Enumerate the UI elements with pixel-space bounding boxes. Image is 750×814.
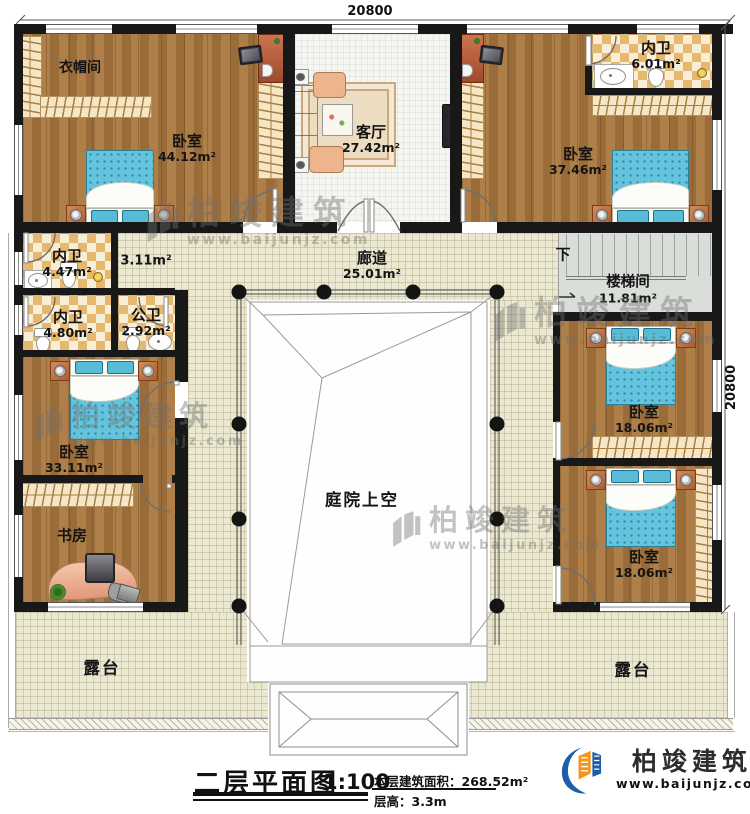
room-label-courtyard: 庭院上空	[325, 492, 399, 511]
wall-segment	[175, 357, 188, 382]
porch-roof-area	[268, 682, 469, 757]
wall-segment	[143, 602, 188, 612]
window	[14, 252, 23, 285]
corridor-floor-left	[188, 300, 247, 612]
wall-segment	[14, 288, 175, 295]
tv-icon	[238, 45, 263, 66]
room-label-living: 客厅 27.42m²	[342, 124, 400, 156]
wall-segment	[712, 412, 722, 485]
wall-segment	[172, 475, 188, 483]
wall-segment	[277, 222, 337, 233]
pillow	[643, 470, 671, 483]
window	[14, 515, 23, 577]
wall-segment	[175, 290, 188, 357]
wall-segment	[14, 24, 23, 125]
wall-segment	[14, 335, 23, 395]
room-label-bedroom-r1: 卧室 18.06m²	[615, 404, 673, 436]
window	[14, 305, 23, 335]
title-underline-thick	[193, 792, 368, 796]
window	[14, 395, 23, 460]
wall-segment	[553, 602, 600, 612]
room-label-terrace-left: 露台	[84, 660, 121, 679]
window	[600, 602, 690, 612]
wall-segment	[112, 24, 176, 34]
sink-icon	[600, 68, 626, 85]
wall-segment	[14, 475, 143, 483]
bed-sheet	[606, 343, 676, 369]
bed-headboard	[606, 326, 676, 343]
terrace-parapet-right	[727, 612, 735, 718]
room-label-bedroom-ml: 卧室 33.11m²	[45, 444, 103, 476]
wall-segment	[14, 602, 48, 612]
wardrobe	[592, 95, 720, 116]
stair-treads	[566, 234, 711, 276]
plant-icon	[274, 38, 280, 44]
wardrobe	[258, 82, 284, 179]
room-label-bath-l1: 内卫 4.47m²	[42, 248, 91, 280]
pillow	[611, 328, 639, 341]
bed	[606, 326, 676, 405]
room-label-bedroom-tr: 卧室 37.46m²	[549, 146, 607, 178]
window	[332, 24, 418, 34]
wall-segment	[418, 24, 467, 34]
room-label-terrace-right: 露台	[615, 662, 652, 681]
wall-segment	[712, 190, 722, 360]
wall-segment	[585, 88, 722, 95]
bed	[612, 150, 689, 225]
dimension-right: 20800	[724, 365, 739, 410]
wall-segment	[257, 24, 332, 34]
window	[14, 125, 23, 195]
bed-headboard	[70, 359, 139, 376]
wall-segment	[553, 458, 722, 466]
wall-segment	[553, 458, 560, 566]
plant-icon	[50, 584, 66, 600]
room-label-stairwell: 楼梯间 11.81m²	[599, 274, 657, 305]
wall-segment	[283, 34, 295, 222]
wall-segment	[111, 295, 118, 350]
wall-segment	[712, 24, 722, 120]
bed-headboard	[606, 468, 676, 485]
bed-sheet	[70, 376, 139, 402]
corridor-floor-right	[490, 300, 553, 612]
bed	[70, 359, 139, 440]
bed-sheet	[612, 182, 689, 208]
pillow	[611, 470, 639, 483]
nightstand	[50, 361, 70, 381]
bed-sheet	[606, 485, 676, 511]
pillow	[107, 361, 135, 374]
room-label-bath-l2: 内卫 4.80m²	[43, 309, 92, 341]
wall-segment	[111, 233, 118, 290]
armchair	[313, 72, 346, 98]
nightstand	[138, 361, 158, 381]
wall-segment	[553, 312, 722, 321]
plant-icon	[474, 38, 480, 44]
pillow	[643, 328, 671, 341]
wardrobe	[20, 483, 134, 507]
wall-segment	[553, 321, 560, 422]
room-label-corridor: 廊道 25.01m²	[343, 250, 401, 282]
brand-logo-icon	[556, 744, 608, 796]
bed-sheet	[86, 182, 154, 208]
wall-segment	[497, 222, 722, 233]
tv-icon	[479, 45, 504, 66]
nightstand	[676, 470, 696, 490]
room-label-study: 书房	[57, 527, 87, 544]
room-label-bath-tr: 内卫 6.01m²	[631, 40, 680, 72]
room-label-cloakroom: 衣帽间	[59, 60, 101, 76]
plan-floor-height: 层高：3.3m	[374, 791, 447, 810]
wall-segment	[175, 418, 188, 612]
bed	[86, 150, 154, 225]
wall-segment	[568, 24, 637, 34]
lamp-icon	[93, 272, 103, 282]
wall-segment	[14, 350, 188, 357]
wardrobe	[40, 96, 152, 118]
window	[46, 24, 112, 34]
dimension-top: 20800	[340, 4, 400, 19]
window	[712, 120, 722, 190]
wall-segment	[400, 222, 462, 233]
pillow	[75, 361, 103, 374]
window	[176, 24, 257, 34]
bed	[606, 468, 676, 547]
armchair	[309, 146, 344, 173]
title-divider	[372, 788, 496, 790]
window	[712, 360, 722, 412]
window	[637, 24, 699, 34]
window	[712, 485, 722, 540]
nightstand	[586, 328, 606, 348]
title-underline-thin	[193, 799, 368, 801]
window	[48, 602, 143, 612]
nightstand	[586, 470, 606, 490]
nightstand	[676, 328, 696, 348]
brand-logo: 柏竣建筑 www.baijunjz.com	[556, 744, 750, 796]
window	[467, 24, 568, 34]
brand-name: 柏竣建筑	[632, 749, 750, 774]
stair-down-label: 下	[555, 246, 570, 263]
floor-plan-canvas: 衣帽间 卧室 44.12m² 客厅 27.42m² 内卫 6.01m² 卧室 3…	[0, 0, 750, 814]
lamp-icon	[697, 68, 707, 78]
brand-url: www.baijunjz.com	[616, 778, 750, 791]
wall-segment	[14, 460, 23, 515]
wall-segment	[690, 602, 722, 612]
room-label-hall: 3.11m²	[120, 255, 171, 270]
computer-monitor-icon	[85, 553, 115, 583]
room-label-bedroom-tl: 卧室 44.12m²	[158, 133, 216, 165]
wall-segment	[14, 222, 243, 233]
room-label-bedroom-r2: 卧室 18.06m²	[615, 549, 673, 581]
room-label-bath-pub: 公卫 2.92m²	[121, 307, 170, 339]
wall-segment	[450, 34, 462, 222]
